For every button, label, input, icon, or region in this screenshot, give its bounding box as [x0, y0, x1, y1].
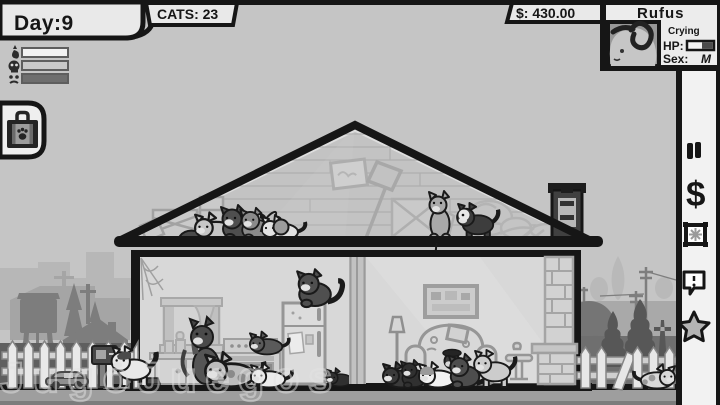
svg-text:Sex:: Sex:	[663, 52, 688, 66]
svg-text:CATS: 23: CATS: 23	[157, 6, 218, 22]
svg-text:$: 430.00: $: 430.00	[516, 5, 575, 21]
svg-text:Rufus: Rufus	[637, 5, 685, 22]
svg-text:Crying: Crying	[668, 26, 700, 37]
svg-text:M: M	[701, 52, 712, 66]
svg-text:$: $	[686, 175, 705, 214]
svg-text:Day:9: Day:9	[14, 12, 74, 35]
svg-text:HP:: HP:	[663, 39, 684, 53]
